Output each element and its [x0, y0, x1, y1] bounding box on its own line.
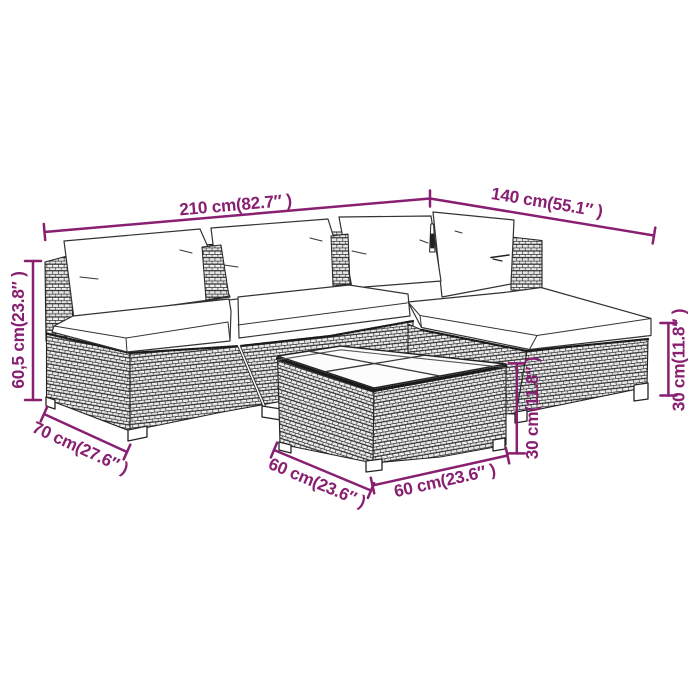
svg-text:30 cm(11.8″ ): 30 cm(11.8″ ) [669, 309, 689, 411]
svg-text:30 cm(11.8″ ): 30 cm(11.8″ ) [522, 357, 542, 459]
svg-text:60,5 cm(23.8″ ): 60,5 cm(23.8″ ) [8, 271, 28, 388]
